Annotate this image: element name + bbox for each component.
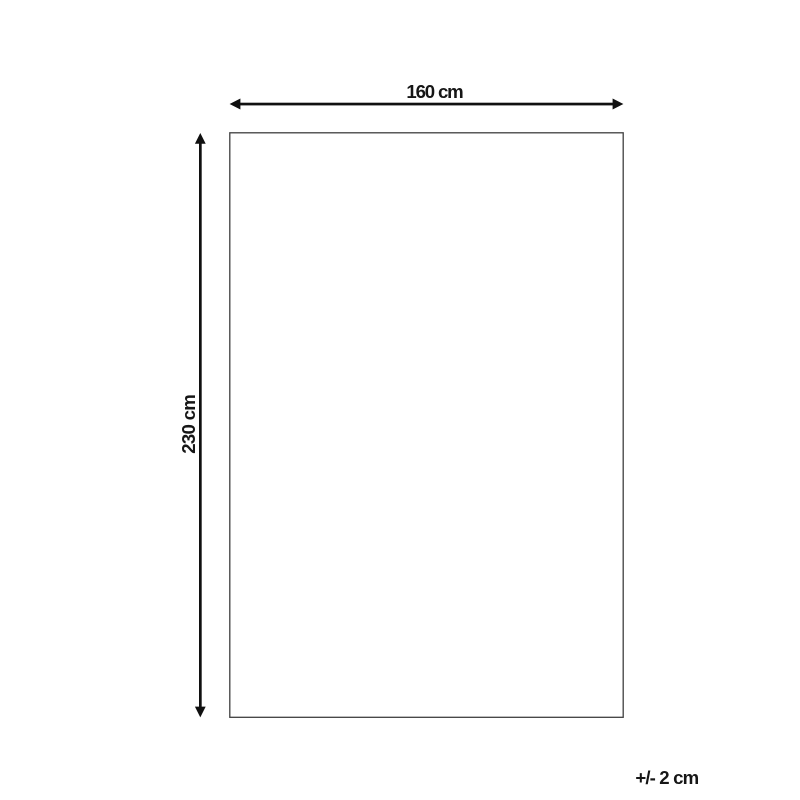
svg-text:160 cm: 160 cm	[406, 81, 463, 102]
svg-text:230 cm: 230 cm	[178, 395, 199, 454]
svg-text:+/- 2 cm: +/- 2 cm	[635, 767, 698, 788]
